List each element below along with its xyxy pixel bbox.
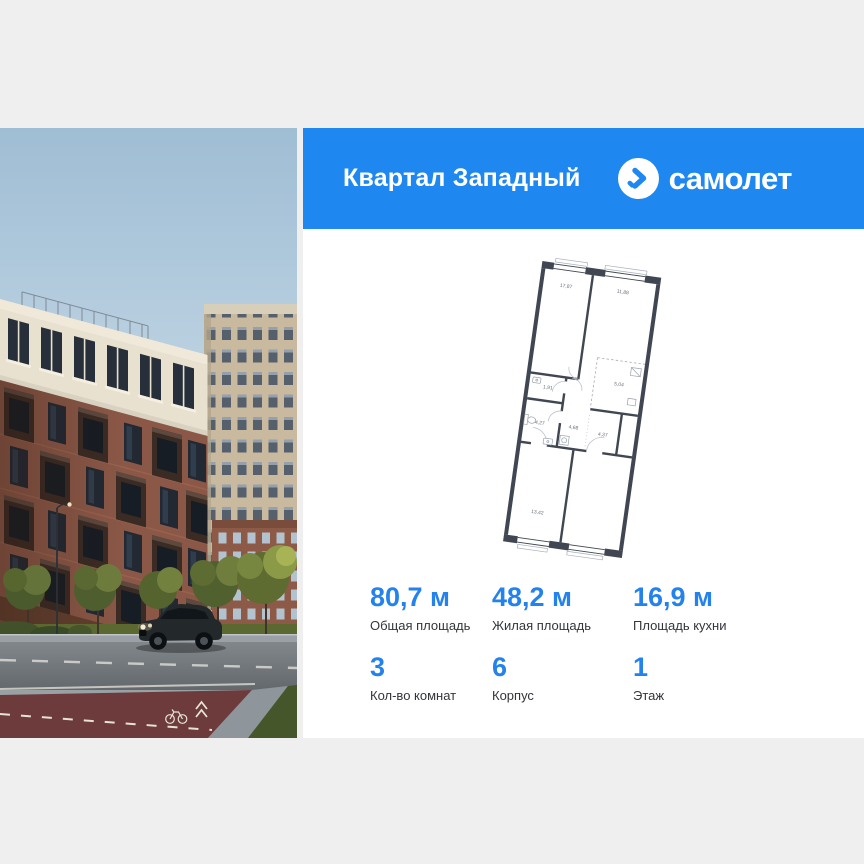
plan-interior-walls: [506, 268, 656, 550]
plan-room-labels: 17,87 11,88 5,04 1,91 4,27 4,68 4,37 13,…: [522, 280, 637, 525]
photo-scene: [0, 128, 297, 738]
stat-label: Кол-во комнат: [370, 688, 492, 703]
room-area-label: 4,68: [568, 424, 579, 431]
residential-complex-photo: [0, 128, 297, 738]
room-area-label: 5,04: [614, 381, 625, 388]
stat-label: Общая площадь: [370, 618, 492, 633]
stat-label: Этаж: [633, 688, 803, 703]
stat-building-number: 6 Корпус: [492, 651, 633, 703]
stat-rooms-count: 3 Кол-во комнат: [370, 651, 492, 703]
stat-floor: 1 Этаж: [633, 651, 803, 703]
stat-value: 1: [633, 651, 803, 683]
stat-value: 48,2 м: [492, 581, 633, 613]
bike-lane: [0, 690, 252, 738]
apartment-stats: 80,7 м Общая площадь 48,2 м Жилая площад…: [370, 581, 803, 703]
stat-label: Площадь кухни: [633, 618, 803, 633]
brand-logo: самолет: [618, 158, 792, 199]
room-area-label: 4,27: [535, 420, 546, 427]
room-area-label: 11,88: [616, 289, 629, 297]
room-area-label: 13,42: [531, 509, 544, 517]
stat-value: 16,9 м: [633, 581, 803, 613]
stat-value: 3: [370, 651, 492, 683]
listing-card: Квартал Западный самолет: [0, 0, 864, 864]
plan-outer-walls: [503, 261, 661, 558]
stat-total-area: 80,7 м Общая площадь: [370, 581, 492, 633]
stat-value: 6: [492, 651, 633, 683]
room-area-label: 17,87: [559, 283, 572, 291]
header: Квартал Западный самолет: [303, 128, 864, 229]
brand-name: самолет: [669, 161, 792, 197]
project-title: Квартал Западный: [343, 164, 581, 193]
stat-kitchen-area: 16,9 м Площадь кухни: [633, 581, 803, 633]
stat-label: Корпус: [492, 688, 633, 703]
stat-label: Жилая площадь: [492, 618, 633, 633]
info-panel: 17,87 11,88 5,04 1,91 4,27 4,68 4,37 13,…: [303, 229, 864, 738]
stat-value: 80,7 м: [370, 581, 492, 613]
samolet-logo-icon: [618, 158, 659, 199]
floor-plan: 17,87 11,88 5,04 1,91 4,27 4,68 4,37 13,…: [500, 255, 664, 566]
plan-fixtures: [521, 354, 641, 456]
room-area-label: 1,91: [543, 384, 554, 391]
stat-living-area: 48,2 м Жилая площадь: [492, 581, 633, 633]
